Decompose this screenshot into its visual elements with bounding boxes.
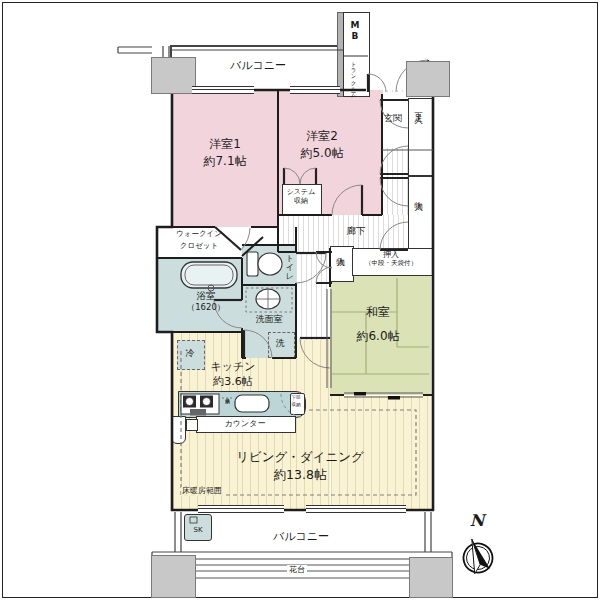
oshiire-note-label: （中段・天袋付）	[365, 260, 417, 267]
monoire-right-label: 物入	[414, 194, 423, 196]
ld-size: 約13.8帖	[274, 468, 327, 482]
wic-label-2: クロゼット	[180, 242, 218, 251]
base-storage-label-2: 収納	[292, 402, 301, 407]
floorplan-canvas: バルコニー MB トランクルーム 玄関 下足入 物入 廊下 洋室1 約7.1帖 …	[0, 0, 600, 600]
balcony-top-label: バルコニー	[230, 60, 286, 73]
bedroom2-name: 洋室2	[306, 130, 338, 144]
genkan-label: 玄関	[384, 114, 402, 124]
balcony-bottom-label: バルコニー	[273, 531, 329, 544]
closet-monoire-mid	[330, 246, 354, 282]
oshiire-label: 押入	[383, 250, 399, 259]
trunk-room-label: トランクルーム	[351, 58, 357, 96]
hanadai-label: 花台	[287, 565, 307, 574]
window-bedroom2	[290, 86, 340, 94]
room-ld-floor-mid	[296, 340, 330, 509]
pillar-top-right	[406, 61, 450, 97]
washitsu-size: 約6.0帖	[356, 330, 399, 344]
ld-name: リビング・ダイニング	[236, 450, 364, 464]
bath-size: （1620）	[187, 303, 226, 313]
bedroom1-size: 約7.1帖	[203, 155, 246, 169]
north-label: N	[470, 512, 485, 530]
bedroom2-size: 約5.0帖	[300, 147, 343, 161]
toilet-label: トイレ	[284, 249, 293, 276]
pillar-bottom-right	[409, 557, 453, 598]
kitchen-size: 約3.6帖	[213, 376, 253, 389]
window-ld-left	[198, 505, 284, 513]
fridge-label: 冷	[186, 348, 195, 358]
corridor-middle	[296, 252, 330, 340]
pillar-top-left	[151, 57, 196, 94]
sk-label: SK	[193, 526, 202, 534]
wic-label-1: ウォークイン	[176, 230, 222, 239]
closet-monoire-right	[408, 176, 433, 252]
rouka-label: 廊下	[347, 226, 366, 237]
counter-label: カウンター	[225, 419, 266, 428]
mb-label: MB	[349, 20, 359, 42]
pillar-bottom-left	[151, 555, 196, 598]
bedroom1-name: 洋室1	[209, 138, 241, 152]
washroom-label: 洗面室	[256, 314, 283, 324]
washer-label: 洗	[276, 338, 285, 348]
kitchen-side-cabinet	[171, 416, 186, 444]
base-storage-label-1: 下部	[292, 395, 301, 400]
kitchen-small-box	[186, 419, 198, 431]
window-bedroom1	[192, 86, 254, 94]
floor-heating-label: 床暖房範囲	[181, 487, 223, 496]
window-ld-right	[306, 505, 406, 513]
closet-getabako	[408, 98, 433, 176]
kitchen-name: キッチン	[210, 361, 255, 374]
washitsu-name: 和室	[366, 306, 390, 320]
kitchen-counter	[178, 391, 306, 418]
bath-name: 浴室	[197, 291, 216, 302]
system-storage-label-2: 収納	[294, 197, 308, 205]
getabako-label: 下足入	[414, 106, 423, 109]
system-storage-label-1: システム	[287, 188, 316, 196]
